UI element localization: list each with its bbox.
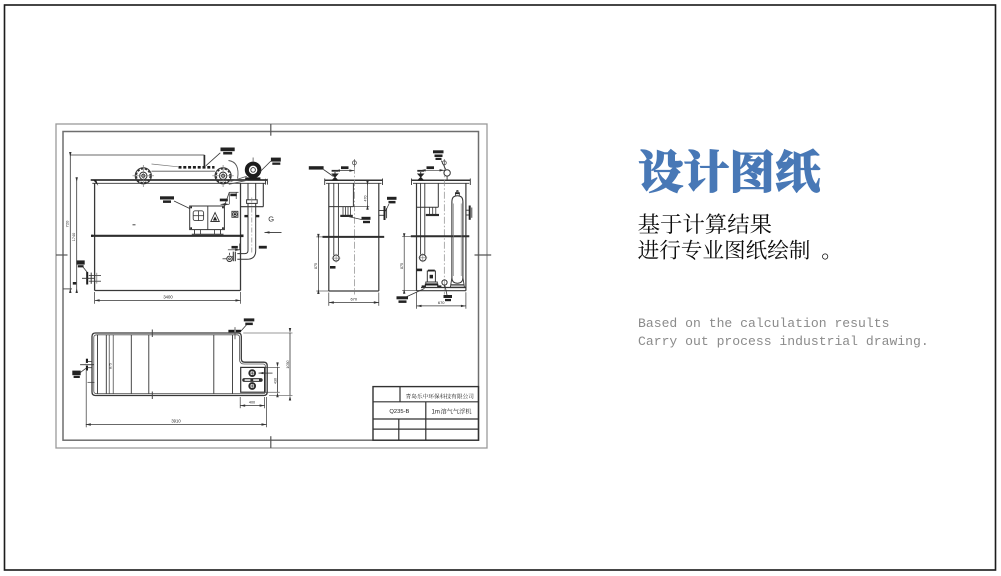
svg-text:875: 875 <box>400 263 404 269</box>
svg-text:Q235-B: Q235-B <box>389 409 409 415</box>
svg-text:470: 470 <box>363 196 367 202</box>
svg-text:670: 670 <box>350 297 357 302</box>
svg-text:875: 875 <box>109 363 113 369</box>
svg-text:670: 670 <box>438 300 445 305</box>
svg-text:1030: 1030 <box>286 360 290 368</box>
svg-text:G: G <box>268 215 274 224</box>
svg-text:3910: 3910 <box>171 419 181 424</box>
svg-text:430: 430 <box>273 378 277 384</box>
svg-text:1740: 1740 <box>72 233 76 241</box>
svg-text:3400: 3400 <box>163 295 173 300</box>
svg-text:720: 720 <box>65 220 70 227</box>
svg-text:875: 875 <box>314 263 318 269</box>
svg-text:1m: 1m <box>432 409 440 415</box>
svg-text:400: 400 <box>249 400 255 404</box>
